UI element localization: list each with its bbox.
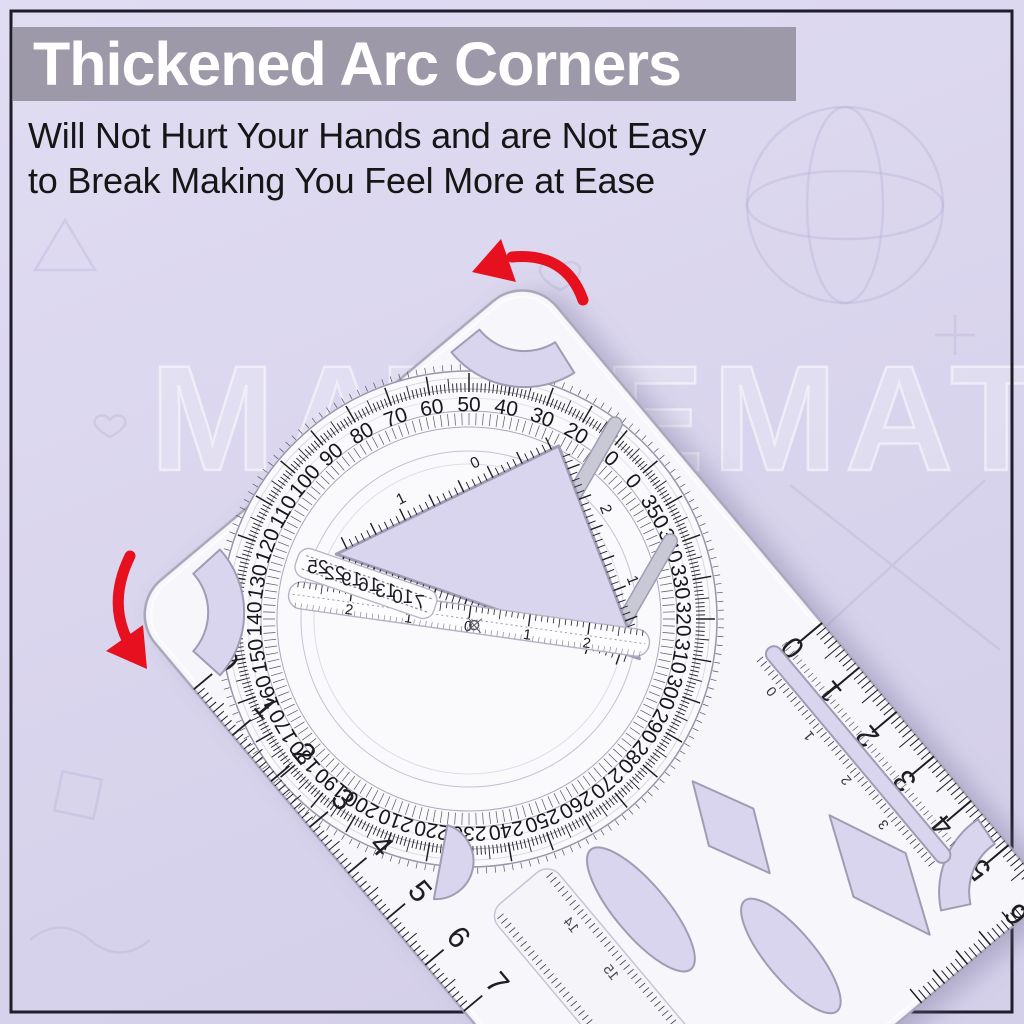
degree-label: 140 [243,601,266,636]
subtitle-line1: Will Not Hurt Your Hands and are Not Eas… [28,113,706,158]
title-banner: Thickened Arc Corners [13,27,796,101]
degree-label: 40 [493,395,520,422]
arm-scale-label: 10 [392,587,413,608]
degree-label: 50 [457,393,480,416]
page-title: Thickened Arc Corners [33,29,681,99]
subtitle: Will Not Hurt Your Hands and are Not Eas… [28,113,706,203]
subtitle-line2: to Break Making You Feel More at Ease [28,158,706,203]
degree-label: 320 [672,601,695,636]
arm-scale-label: 7 [415,593,426,614]
degree-label: 60 [418,395,445,422]
product-image: MATHEMATICS 0102030405060708090100110120… [0,0,1024,1024]
